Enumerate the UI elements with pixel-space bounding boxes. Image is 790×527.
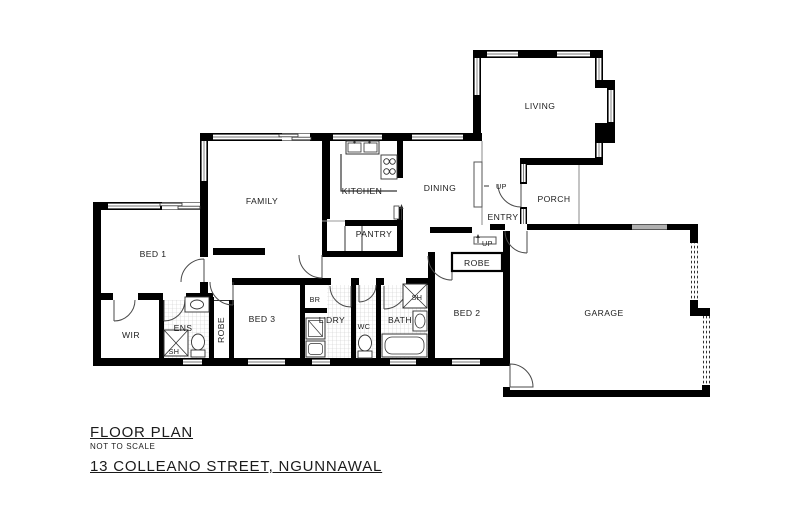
room-label-bed1: BED 1 <box>140 249 167 259</box>
bathtub-icon <box>382 334 427 357</box>
room-label-entry: ENTRY <box>488 212 519 222</box>
room-label-ldry: L'DRY <box>319 315 345 325</box>
label-up-entry: UP <box>496 182 507 191</box>
room-label-robe-bed3: ROBE <box>216 317 226 343</box>
bath-basin-icon <box>413 311 427 331</box>
room-label-garage: GARAGE <box>584 308 623 318</box>
ens-basin-icon <box>185 297 209 312</box>
plan-title: FLOOR PLAN <box>90 424 193 441</box>
room-label-wc: WC <box>358 322 371 331</box>
kitchen-sink-icon <box>346 141 379 154</box>
room-label-wir: WIR <box>122 330 140 340</box>
room-label-bath: BATH <box>388 315 412 325</box>
garage-beam <box>632 225 667 230</box>
label-up-hall: UP <box>482 239 493 248</box>
property-address: 13 COLLEANO STREET, NGUNNAWAL <box>90 458 382 475</box>
room-label-living: LIVING <box>525 101 556 111</box>
sliding-window-icon <box>160 203 200 210</box>
room-label-bed3: BED 3 <box>249 314 276 324</box>
room-label-pantry: PANTRY <box>356 229 392 239</box>
scale-note: NOT TO SCALE <box>90 442 155 451</box>
room-label-bed2: BED 2 <box>454 308 481 318</box>
ens-toilet-icon <box>191 334 205 357</box>
room-label-dining: DINING <box>424 183 456 193</box>
room-label-family: FAMILY <box>246 196 278 206</box>
sliding-door-icon <box>279 134 311 141</box>
room-label-robe-bed2: ROBE <box>464 258 490 268</box>
room-label-br: BR <box>310 295 321 304</box>
wc-toilet-icon <box>358 335 372 358</box>
room-label-kitchen: KITCHEN <box>342 186 383 196</box>
room-label-porch: PORCH <box>537 194 570 204</box>
laundry-tub-icon <box>306 341 325 357</box>
floor-plan-page: LIVING PORCH ENTRY DINING KITCHEN PANTRY… <box>0 0 790 527</box>
room-label-sh-bath: SH <box>412 293 423 302</box>
cooktop-icon <box>381 155 397 179</box>
room-label-sh-ens: SH <box>169 347 180 356</box>
room-label-ens: ENS <box>174 323 193 333</box>
